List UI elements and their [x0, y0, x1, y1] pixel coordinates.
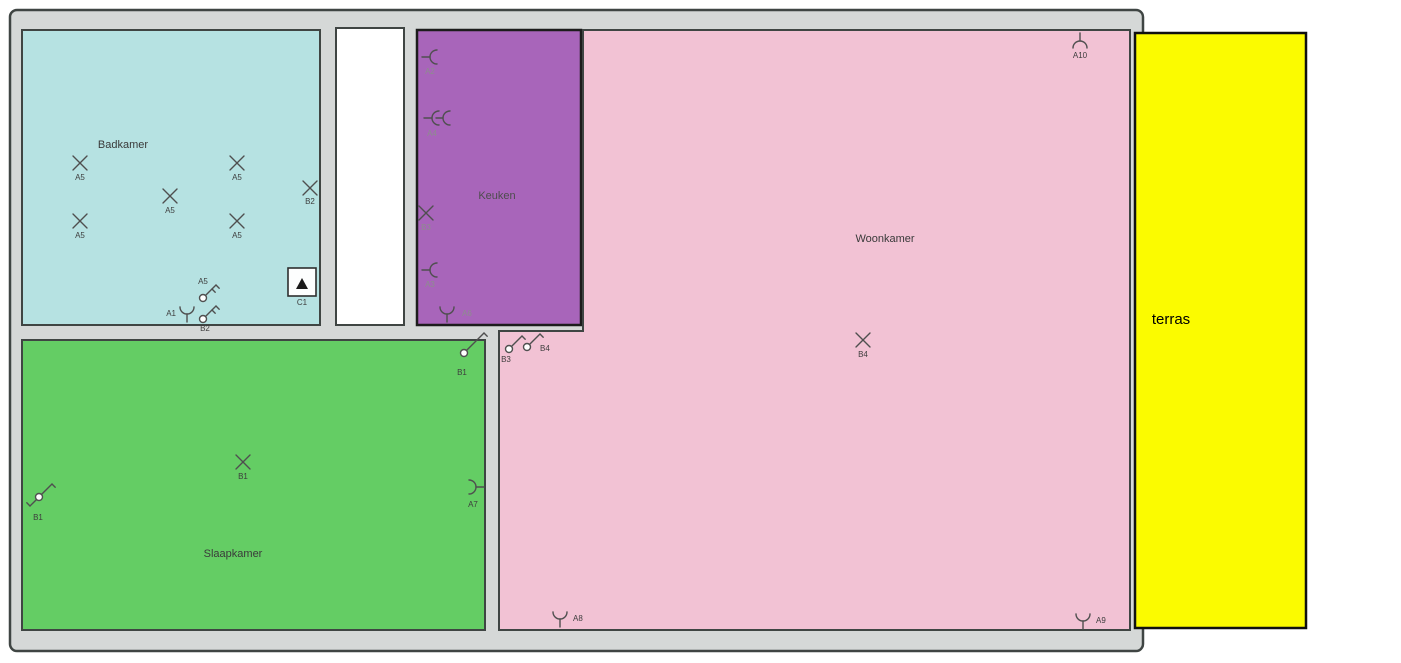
symbol-label: A5	[232, 231, 242, 240]
symbol-label: A5	[75, 231, 85, 240]
symbol-label: B2	[200, 324, 210, 333]
symbol-label: A8	[573, 614, 583, 623]
symbol-label: A3	[425, 280, 435, 289]
symbol-label: B4	[858, 350, 868, 359]
room-woonkamer	[499, 30, 1130, 630]
symbol-label: B1	[33, 513, 43, 522]
room-keuken	[417, 30, 581, 325]
symbol-label: A6	[462, 309, 472, 318]
room-badkamer	[22, 30, 320, 325]
room-terras	[1135, 33, 1306, 628]
symbol-label: B2	[305, 197, 315, 206]
symbol-label: B3	[421, 223, 431, 232]
symbol-label: A7	[468, 500, 478, 509]
symbol-label: A1	[166, 309, 176, 318]
symbol-label: A10	[1073, 51, 1088, 60]
symbol-box-c1	[288, 268, 316, 296]
floor-plan-svg: A5A5A5A5A5B2A5B2A1C1A2A4B3A3A6A10B3B4B4A…	[0, 0, 1401, 663]
symbol-label: A5	[165, 206, 175, 215]
symbol-label: A4	[427, 129, 437, 138]
symbol-label: A5	[232, 173, 242, 182]
symbol-label: B1	[457, 368, 467, 377]
symbol-label: A2	[425, 67, 435, 76]
room-slaapkamer	[22, 340, 485, 630]
symbol-label: A5	[75, 173, 85, 182]
symbol-label: B4	[540, 344, 550, 353]
symbol-label: B3	[501, 355, 511, 364]
symbol-label: C1	[297, 298, 308, 307]
floor-plan: A5A5A5A5A5B2A5B2A1C1A2A4B3A3A6A10B3B4B4A…	[0, 0, 1401, 663]
symbol-label: A5	[198, 277, 208, 286]
symbol-label: A9	[1096, 616, 1106, 625]
symbol-label: B1	[238, 472, 248, 481]
room-hal	[336, 28, 404, 325]
